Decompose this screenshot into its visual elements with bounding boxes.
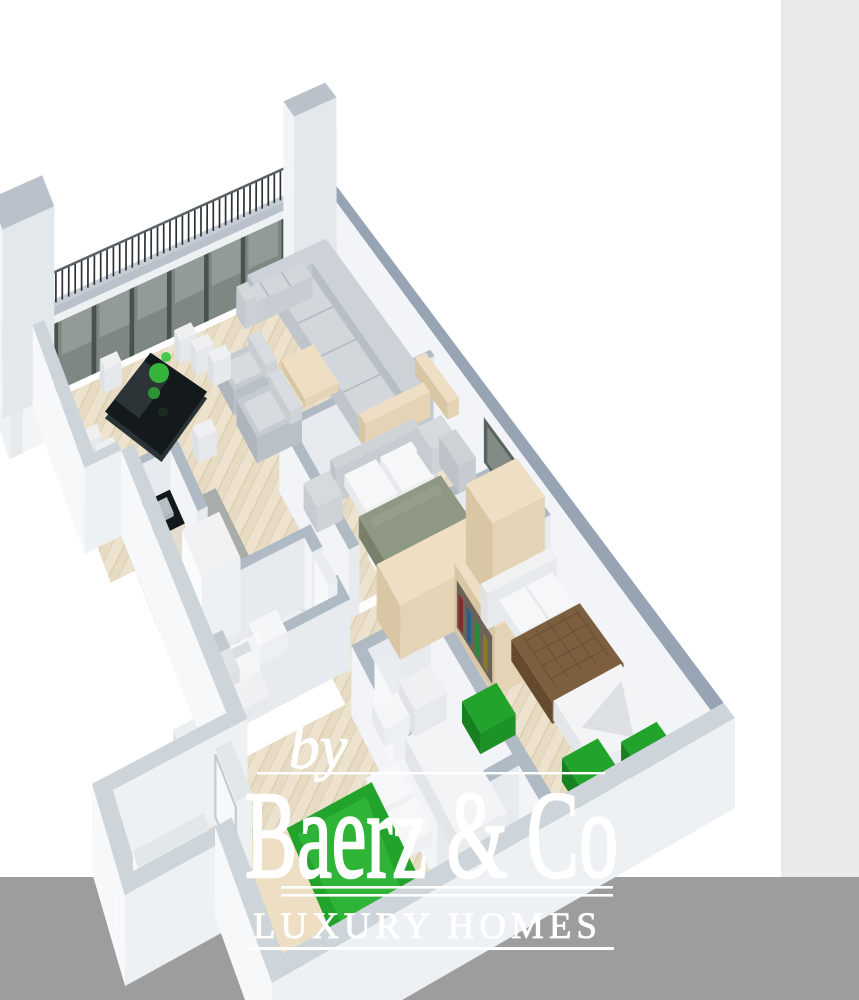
svg-text:LUXURY HOMES: LUXURY HOMES (253, 906, 610, 947)
svg-text:Baerz & Co: Baerz & Co (245, 767, 618, 905)
